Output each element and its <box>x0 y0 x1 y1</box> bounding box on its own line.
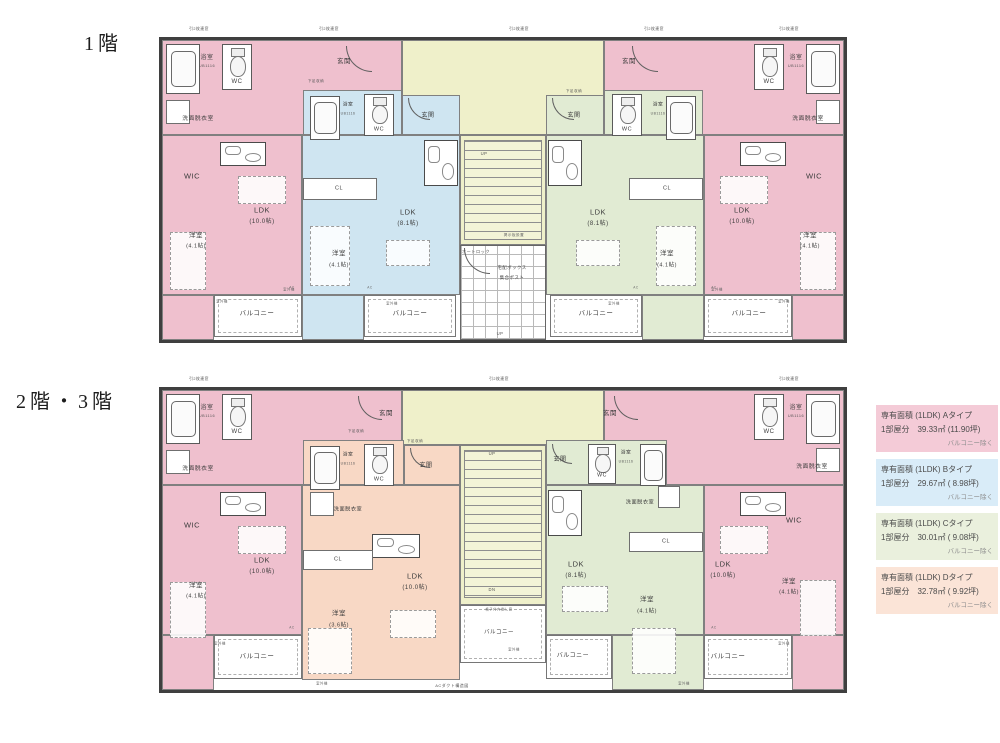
room-label: 引2枚連窓 <box>189 378 209 382</box>
room-label: 下足収納 <box>308 80 324 84</box>
legend-a-area: 1部屋分 39.33㎡ (11.90坪) <box>881 424 993 435</box>
room-label: DN <box>488 588 495 592</box>
room-label: WC <box>622 127 632 133</box>
room-label: 洋室 <box>660 251 674 258</box>
unit-a-left-ext <box>162 295 214 340</box>
bath-a-left <box>166 44 200 94</box>
room-label: LDK <box>254 206 270 214</box>
legend-b-title: 専有面積 (1LDK) Bタイプ <box>881 464 993 475</box>
room-label: (4.1帖) <box>186 244 206 250</box>
bath-a-left <box>166 394 200 444</box>
stairs <box>464 450 542 598</box>
room-label: (4.1帖) <box>657 263 677 269</box>
bath-c <box>640 444 666 486</box>
legend-type-d: 専有面積 (1LDK) Dタイプ 1部屋分 32.78㎡ ( 9.92坪) バル… <box>876 567 998 614</box>
room-label: UB1116 <box>199 65 215 69</box>
room-label: AC <box>633 286 638 289</box>
room-label: 引2枚連窓 <box>189 28 209 32</box>
stairs <box>464 140 542 240</box>
legend-a-title: 専有面積 (1LDK) Aタイプ <box>881 410 993 421</box>
room-label: WC <box>597 473 607 478</box>
room-label: 下足収納 <box>566 90 582 94</box>
kitchen-b <box>424 140 458 186</box>
room-label: UP <box>481 152 488 156</box>
room-label: (4.1帖) <box>329 263 349 269</box>
room-label: 引2枚連窓 <box>779 378 799 382</box>
floor1-plan: 浴室UB1116WC洗面脱衣室WIC洋室(4.1帖)LDK(10.0帖)玄関下足… <box>159 37 847 343</box>
room-label: 洗面脱衣室 <box>182 117 214 123</box>
room-label: LDK <box>734 206 750 214</box>
unit-a-right-ext <box>792 295 844 340</box>
room-label: WIC <box>184 521 200 529</box>
room-label: ACダクト構造図 <box>435 684 469 688</box>
room-label: 室外機 <box>508 648 520 651</box>
room-label: 洋室 <box>782 579 796 586</box>
bath-c <box>666 96 696 140</box>
table <box>576 240 620 266</box>
room-label: (4.1帖) <box>779 590 799 596</box>
room-label: UP <box>497 332 504 336</box>
room-label: WIC <box>786 516 802 524</box>
room-label: (10.0帖) <box>710 573 735 579</box>
room-label: CL <box>662 539 670 545</box>
bath-a-right <box>806 394 840 444</box>
room-label: 室外機 <box>608 302 620 305</box>
room-label: バルコニー <box>579 311 614 318</box>
room-label: バルコニー <box>557 653 589 659</box>
bed <box>170 582 206 638</box>
room-label: 掲示板設置 <box>504 234 524 238</box>
room-label: バルコニー <box>484 630 514 636</box>
room-label: 浴室 <box>789 405 802 411</box>
unit-b-ext <box>302 295 364 340</box>
table <box>720 176 768 204</box>
room-label: 引2枚連窓 <box>509 28 529 32</box>
floor2-title: 2階・3階 <box>16 385 116 414</box>
bed <box>632 628 676 674</box>
legend-a-note: バルコニー除く <box>881 437 993 447</box>
room-label: LDK <box>400 208 416 216</box>
room-label: 玄関 <box>622 59 636 66</box>
room-label: 格子付内倒し窓 <box>485 608 512 611</box>
room-label: 引2枚連窓 <box>644 28 664 32</box>
kitchen-c <box>548 490 582 536</box>
room-label: 玄関 <box>567 113 580 119</box>
room-label: 玄関 <box>419 463 432 469</box>
room-label: WIC <box>184 172 200 180</box>
room-label: WIC <box>806 172 822 180</box>
room-label: 洗面脱衣室 <box>626 500 654 505</box>
bed <box>800 232 836 290</box>
room-label: AC <box>711 626 716 629</box>
room-label: 浴室 <box>789 55 802 61</box>
table <box>238 526 286 554</box>
bed <box>308 628 352 674</box>
room-label: 下足収納 <box>348 430 364 434</box>
common-hall-top <box>402 390 604 445</box>
room-label: (10.0帖) <box>249 569 274 575</box>
room-label: 玄関 <box>603 411 617 418</box>
room-label: UB1116 <box>341 112 356 115</box>
sink-c <box>658 486 680 508</box>
room-label: 下足収納 <box>407 440 423 444</box>
room-label: 室外機 <box>778 642 790 645</box>
room-label: 浴室 <box>343 454 354 459</box>
kitchen-a-right <box>740 492 786 516</box>
room-label: バルコニー <box>393 311 428 318</box>
legend-type-c: 専有面積 (1LDK) Cタイプ 1部屋分 30.01㎡ ( 9.08坪) バル… <box>876 513 998 560</box>
room-label: UB1116 <box>199 415 215 419</box>
room-label: 洗面脱衣室 <box>334 507 362 512</box>
room-label: UB1116 <box>788 415 804 419</box>
room-label: 玄関 <box>553 457 566 463</box>
room-label: LDK <box>568 560 584 568</box>
kitchen-d <box>372 534 420 558</box>
legend-d-area: 1部屋分 32.78㎡ ( 9.92坪) <box>881 586 993 597</box>
room-label: (4.1帖) <box>800 244 820 250</box>
sink-d <box>310 492 334 516</box>
room-label: 室外機 <box>778 300 790 303</box>
room-label: 室外機 <box>214 642 226 645</box>
room-label: 洋室 <box>803 233 817 240</box>
room-label: UB1116 <box>651 112 666 115</box>
room-label: 洋室 <box>189 233 203 240</box>
unit-a-right-ext <box>792 635 844 690</box>
room-label: CL <box>335 186 343 192</box>
bed <box>800 580 836 636</box>
room-label: 室外機 <box>678 682 690 685</box>
room-label: 引2枚連窓 <box>319 28 339 32</box>
room-label: WC <box>232 79 243 85</box>
room-label: (8.1帖) <box>397 221 418 227</box>
bath-b <box>310 96 340 140</box>
room-label: LDK <box>590 208 606 216</box>
room-label: 室外機 <box>386 302 398 305</box>
bath-a-right <box>806 44 840 94</box>
floor2-plan: 浴室UB1116WC洗面脱衣室WIC洋室(4.1帖)LDK(10.0帖)玄関下足… <box>159 387 847 693</box>
room-label: 引2枚連窓 <box>489 378 509 382</box>
kitchen-c <box>548 140 582 186</box>
legend-c-area: 1部屋分 30.01㎡ ( 9.08坪) <box>881 532 993 543</box>
room-label: (10.0帖) <box>249 219 274 225</box>
room-label: (8.1帖) <box>587 221 608 227</box>
room-label: (8.1帖) <box>565 573 586 579</box>
legend-b-area: 1部屋分 29.67㎡ ( 8.98坪) <box>881 478 993 489</box>
room-label: 玄関 <box>337 59 351 66</box>
kitchen-a-left <box>220 492 266 516</box>
room-label: WC <box>764 79 775 85</box>
table <box>238 176 286 204</box>
room-label: バルコニー <box>732 311 767 318</box>
bed <box>170 232 206 290</box>
legend-type-a: 専有面積 (1LDK) Aタイプ 1部屋分 39.33㎡ (11.90坪) バル… <box>876 405 998 452</box>
room-label: WC <box>374 477 384 483</box>
table <box>390 610 436 638</box>
room-label: オートロック <box>462 250 490 254</box>
room-label: 洗面脱衣室 <box>796 465 828 471</box>
room-label: 浴室 <box>200 405 213 411</box>
room-label: 玄関 <box>421 113 434 119</box>
room-label: 浴室 <box>200 55 213 61</box>
room-label: バルコニー <box>711 654 746 661</box>
room-label: WC <box>764 429 775 435</box>
room-label: (10.0帖) <box>402 585 427 591</box>
room-label: 洋室 <box>189 583 203 590</box>
room-label: バルコニー <box>240 654 275 661</box>
legend-type-b: 専有面積 (1LDK) Bタイプ 1部屋分 29.67㎡ ( 8.98坪) バル… <box>876 459 998 506</box>
room-label: UB1116 <box>619 460 634 463</box>
room-label: AC <box>289 286 294 289</box>
room-label: 室外機 <box>316 682 328 685</box>
room-label: (4.1帖) <box>637 609 657 615</box>
room-label: LDK <box>254 556 270 564</box>
table <box>720 526 768 554</box>
floorplan-page: { "colors":{"pink":"#efc0ce","blue":"#cf… <box>0 0 1000 743</box>
room-label: 浴室 <box>343 104 354 109</box>
bath-d <box>310 446 340 490</box>
room-label: (4.1帖) <box>186 594 206 600</box>
kitchen-a-left <box>220 142 266 166</box>
table <box>386 240 430 266</box>
kitchen-a-right <box>740 142 786 166</box>
room-label: AC <box>711 286 716 289</box>
table <box>562 586 608 612</box>
unit-c-ext <box>642 295 704 340</box>
room-label: 室外機 <box>216 300 228 303</box>
room-label: UP <box>489 452 496 456</box>
room-label: LDK <box>715 560 731 568</box>
floor1-title: 1階 <box>84 27 122 56</box>
unit-a-left-ext <box>162 635 214 690</box>
room-label: 宅配ボックス <box>497 266 526 270</box>
room-label: WC <box>232 429 243 435</box>
room-label: AC <box>289 626 294 629</box>
room-label: 引2枚連窓 <box>779 28 799 32</box>
room-label: WC <box>374 127 384 133</box>
room-label: CL <box>334 557 342 563</box>
room-label: 浴室 <box>653 104 664 109</box>
room-label: CL <box>663 186 671 192</box>
room-label: 玄関 <box>379 411 393 418</box>
room-label: UB1116 <box>788 65 804 69</box>
room-label: 洋室 <box>332 251 346 258</box>
room-label: 集合ポスト <box>500 276 524 280</box>
room-label: (10.0帖) <box>729 219 754 225</box>
room-label: 浴室 <box>621 452 632 457</box>
legend-d-title: 専有面積 (1LDK) Dタイプ <box>881 572 993 583</box>
room-label: 洗面脱衣室 <box>182 467 214 473</box>
legend-d-note: バルコニー除く <box>881 599 993 609</box>
room-label: UB1116 <box>341 462 356 465</box>
room-label: AC <box>367 286 372 289</box>
room-label: 洗面脱衣室 <box>792 117 824 123</box>
room-label: LDK <box>407 572 423 580</box>
legend-b-note: バルコニー除く <box>881 491 993 501</box>
legend-c-title: 専有面積 (1LDK) Cタイプ <box>881 518 993 529</box>
room-label: 洋室 <box>332 611 346 618</box>
room-label: (3.6帖) <box>329 623 349 629</box>
legend-c-note: バルコニー除く <box>881 545 993 555</box>
room-label: バルコニー <box>240 311 275 318</box>
room-label: 洋室 <box>640 597 654 604</box>
